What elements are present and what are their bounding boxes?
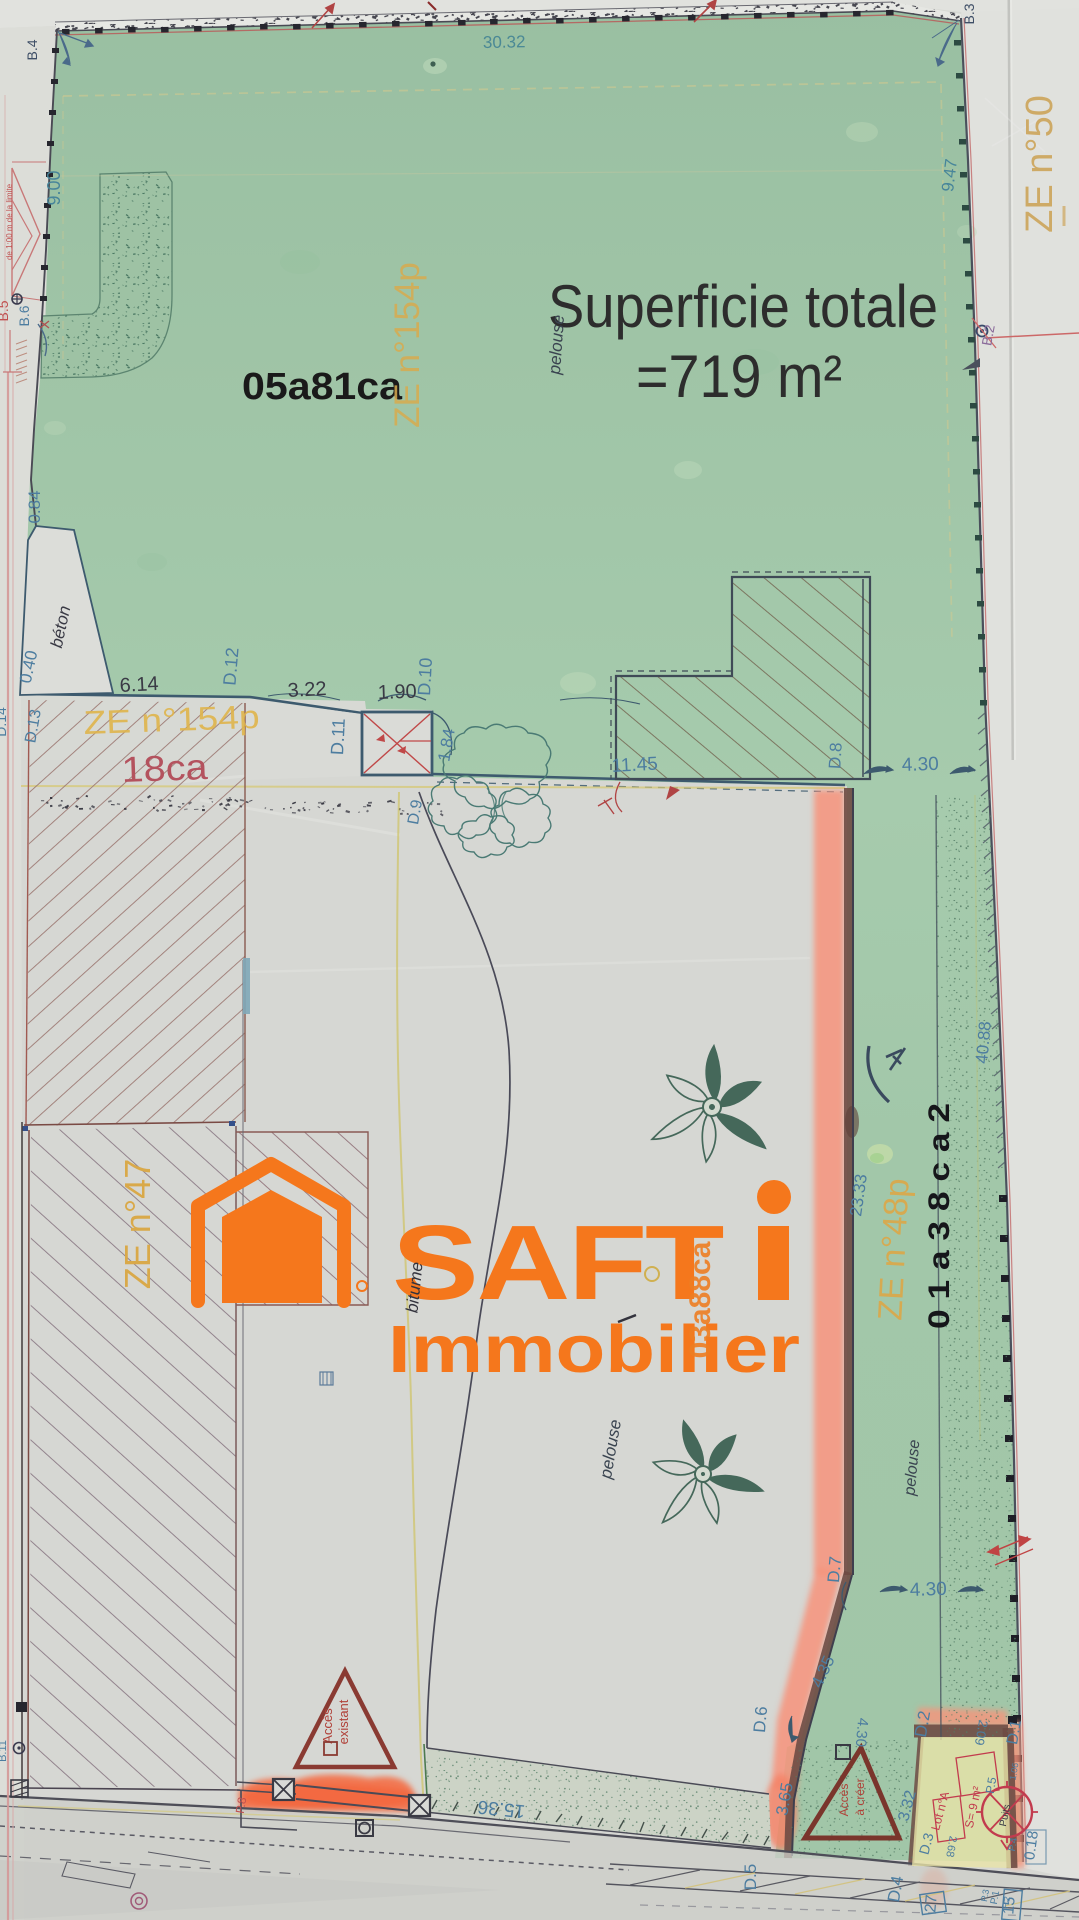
svg-text:30.32: 30.32 [483,32,526,52]
svg-text:ZE n°154p: ZE n°154p [388,262,427,428]
svg-text:D.6: D.6 [750,1706,771,1734]
svg-text:P.3: P.3 [979,1889,991,1903]
svg-text:B.11: B.11 [0,1740,9,1762]
svg-text:15: 15 [1000,1896,1018,1915]
svg-text:9.47: 9.47 [938,158,961,193]
svg-text:D.14: D.14 [0,707,9,737]
svg-text:Immobilier: Immobilier [388,1312,800,1387]
svg-text:03a88ca: 03a88ca [684,1241,717,1358]
svg-text:B.4: B.4 [24,39,40,60]
svg-text:1.90: 1.90 [377,681,417,704]
svg-text:ZE n°48p: ZE n°48p [871,1177,916,1321]
svg-text:Accès: Accès [320,1708,335,1744]
svg-text:ZE n°50: ZE n°50 [1019,95,1061,233]
svg-text:9.00: 9.00 [44,170,64,205]
svg-text:0 1 a 3 8 c a 2: 0 1 a 3 8 c a 2 [923,1103,956,1329]
svg-text:B.3: B.3 [961,3,977,24]
svg-text:ZE n°47: ZE n°47 [117,1159,158,1289]
svg-text:existant: existant [336,1699,351,1744]
svg-text:SAFT: SAFT [392,1204,724,1322]
svg-text:4.30: 4.30 [852,1717,871,1748]
svg-text:27: 27 [922,1894,940,1913]
svg-text:D.10: D.10 [414,657,436,696]
svg-text:4.30: 4.30 [901,754,939,776]
svg-text:D.8: D.8 [825,742,845,769]
svg-text:40.88: 40.88 [972,1021,995,1065]
svg-text:4.30: 4.30 [909,1579,947,1601]
svg-text:D.5: D.5 [741,1864,760,1890]
svg-text:ZE n°154p: ZE n°154p [83,698,260,741]
svg-text:6.14: 6.14 [119,673,159,697]
svg-text:D.7: D.7 [824,1556,845,1584]
svg-text:Superficie totale: Superficie totale [548,273,938,340]
svg-text:B.5: B.5 [0,300,11,321]
svg-text:à créer: à créer [853,1778,867,1815]
svg-text:P.5: P.5 [983,1776,1000,1795]
svg-text:P.8: P.8 [233,1796,250,1815]
svg-text:D.11: D.11 [327,718,349,756]
svg-text:3.22: 3.22 [287,678,327,702]
svg-text:05a81ca: 05a81ca [242,366,403,408]
svg-text:18ca: 18ca [121,746,209,790]
svg-text:11.45: 11.45 [611,754,658,777]
svg-text:0.84: 0.84 [25,490,44,523]
svg-text:Accès: Accès [837,1784,851,1817]
svg-text:D.12: D.12 [219,647,242,687]
svg-text:B.6: B.6 [16,305,32,326]
svg-text:=719 m²: =719 m² [636,343,842,410]
svg-text:de 1:00 m de la limite: de 1:00 m de la limite [5,183,14,260]
